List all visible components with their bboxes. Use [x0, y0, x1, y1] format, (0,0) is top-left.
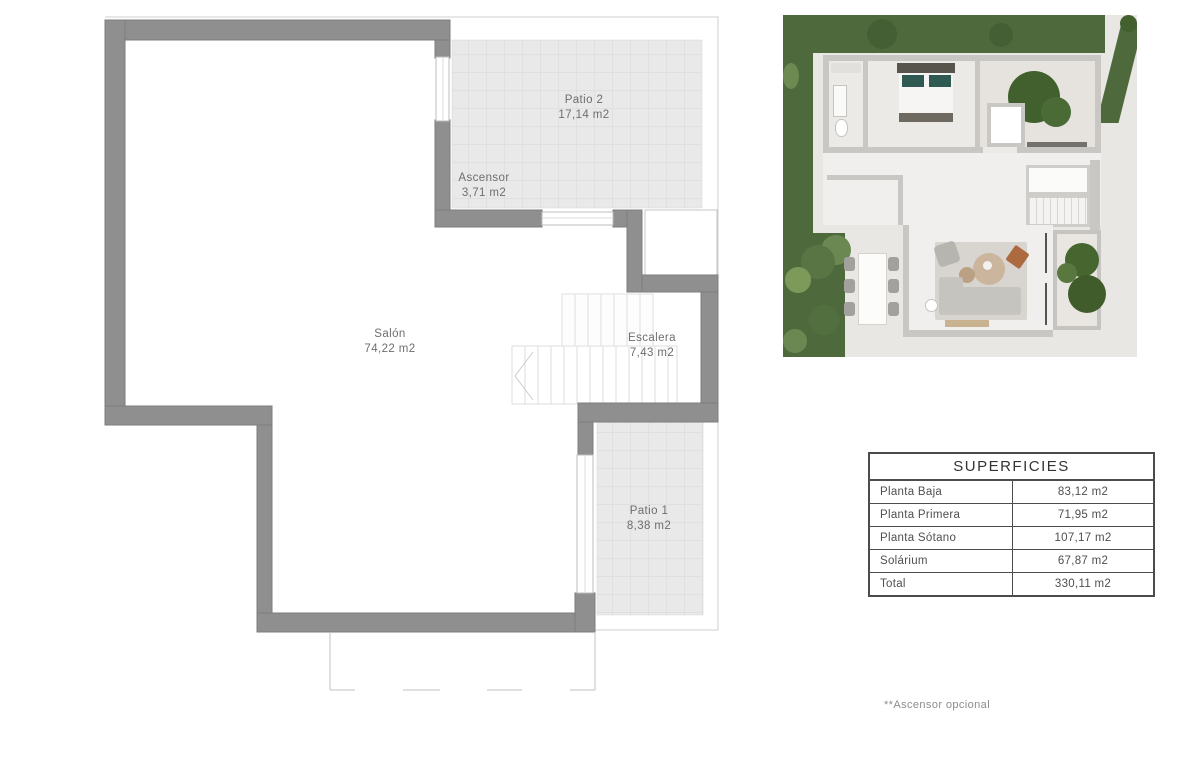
closet — [987, 103, 1025, 147]
ascensor-label: Ascensor — [458, 172, 509, 184]
dining-chair — [844, 302, 855, 316]
grass-top — [783, 15, 1105, 53]
row-label: Planta Primera — [870, 504, 1013, 526]
bush — [785, 267, 811, 293]
render-3d-view — [783, 15, 1137, 357]
table-row: Solárium 67,87 m2 — [870, 550, 1153, 573]
salon-area: 74,22 m2 — [364, 343, 415, 355]
plant — [1057, 263, 1077, 283]
door-mat — [945, 320, 989, 327]
escalera-label: Escalera — [628, 332, 676, 344]
shower — [831, 63, 861, 73]
side-table — [925, 299, 938, 312]
dining-chair — [844, 257, 855, 271]
ascensor-footnote: **Ascensor opcional — [884, 699, 990, 711]
row-label: Solárium — [870, 550, 1013, 572]
ascensor-area: 3,71 m2 — [462, 187, 506, 199]
living-wall — [903, 225, 909, 337]
table-title: SUPERFICIES — [870, 454, 1153, 481]
dining-chair — [844, 279, 855, 293]
grass-texture — [989, 23, 1013, 47]
entry-dashed-outline — [330, 632, 595, 690]
glass-door-frame — [1045, 283, 1047, 325]
sink-counter — [833, 85, 847, 117]
table-row: Planta Primera 71,95 m2 — [870, 504, 1153, 527]
tree — [1041, 97, 1071, 127]
row-value: 107,17 m2 — [1013, 527, 1153, 549]
bed-pillow — [929, 75, 951, 87]
row-label: Planta Baja — [870, 481, 1013, 503]
row-value: 71,95 m2 — [1013, 504, 1153, 526]
toilet — [835, 119, 848, 137]
bed-pillow — [902, 75, 924, 87]
row-value: 67,87 m2 — [1013, 550, 1153, 572]
row-value: 83,12 m2 — [1013, 481, 1153, 503]
superficies-table: SUPERFICIES Planta Baja 83,12 m2 Planta … — [868, 452, 1155, 597]
patio2-label: Patio 2 — [565, 94, 604, 106]
table-row: Planta Sótano 107,17 m2 — [870, 527, 1153, 550]
void-box — [645, 210, 717, 275]
dining-chair — [888, 279, 899, 293]
sofa — [939, 287, 1021, 315]
bush — [1120, 15, 1137, 32]
stair-landing — [1026, 165, 1090, 195]
table-decor — [983, 261, 992, 270]
room-wall — [827, 175, 903, 180]
patio2-area: 17,14 m2 — [558, 109, 609, 121]
row-label: Total — [870, 573, 1013, 595]
bed-footboard — [899, 113, 953, 122]
bathroom-wall — [863, 61, 868, 147]
patio1-area: 8,38 m2 — [627, 520, 671, 532]
patio1-label: Patio 1 — [630, 505, 669, 517]
stairs — [1026, 195, 1090, 227]
plant — [1068, 275, 1106, 313]
bush — [783, 63, 799, 89]
row-label: Planta Sótano — [870, 527, 1013, 549]
living-wall — [903, 330, 1053, 337]
floor-plan-drawing: Patio 2 17,14 m2 Ascensor 3,71 m2 Salón … — [0, 0, 760, 764]
bed-headboard — [897, 63, 955, 73]
escalera-area: 7,43 m2 — [630, 347, 674, 359]
bush — [809, 305, 839, 335]
dining-table — [858, 253, 887, 325]
table-row: Planta Baja 83,12 m2 — [870, 481, 1153, 504]
grass-texture — [867, 19, 897, 49]
floorplan-page: Patio 2 17,14 m2 Ascensor 3,71 m2 Salón … — [0, 0, 1200, 764]
bush — [783, 329, 807, 353]
dining-chair — [888, 302, 899, 316]
salon-label: Salón — [374, 328, 405, 340]
room-wall — [898, 175, 903, 225]
glass-door-frame — [1045, 233, 1047, 273]
dining-chair — [888, 257, 899, 271]
row-value: 330,11 m2 — [1013, 573, 1153, 595]
patio1-area — [597, 422, 703, 615]
table-row: Total 330,11 m2 — [870, 573, 1153, 595]
stair-wall — [1090, 160, 1100, 230]
